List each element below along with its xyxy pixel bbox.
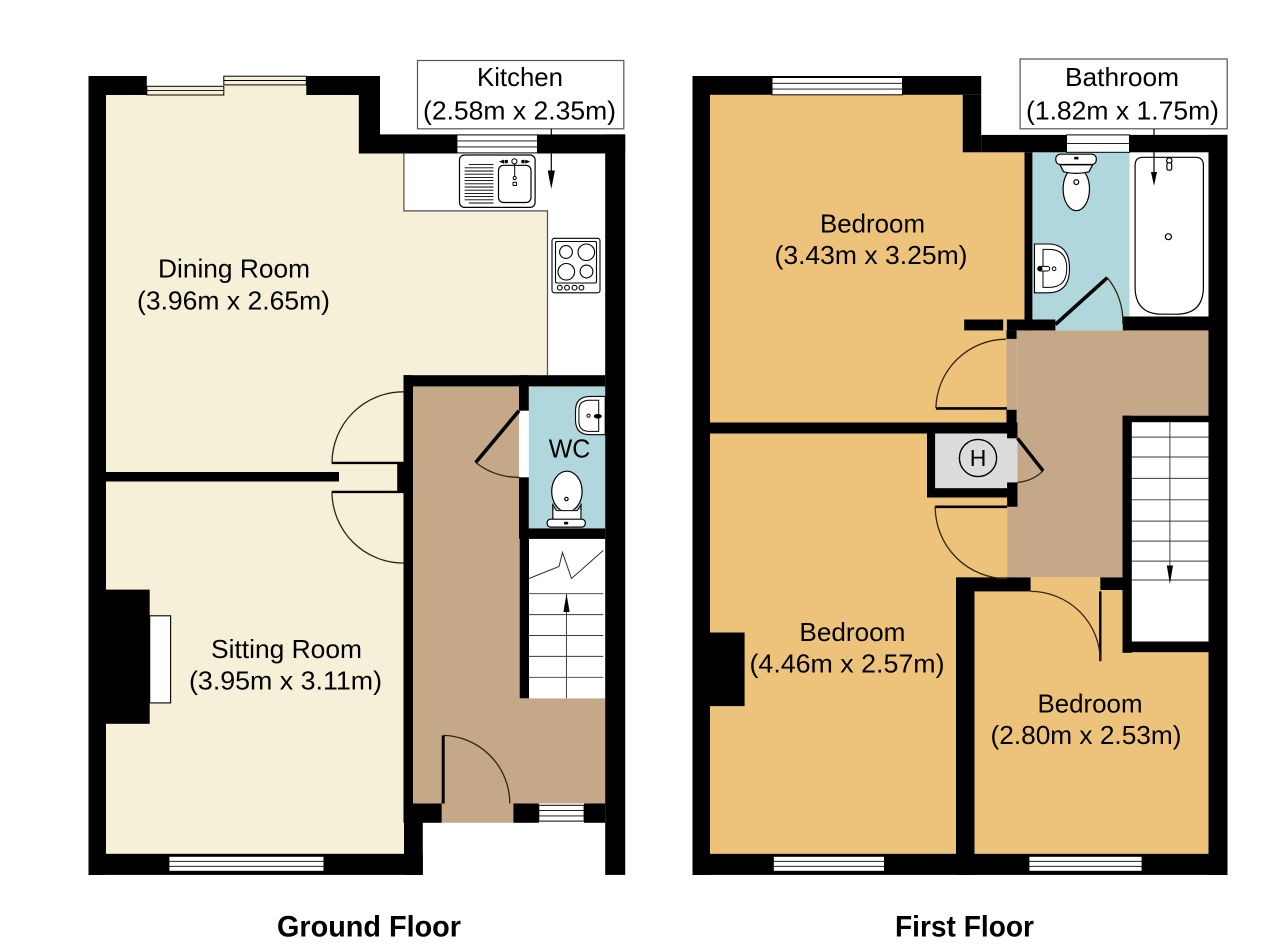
svg-text:(4.46m x 2.57m): (4.46m x 2.57m): [750, 649, 945, 679]
svg-text:Bedroom: Bedroom: [1038, 689, 1143, 719]
svg-text:WC: WC: [549, 434, 591, 464]
svg-text:Bathroom: Bathroom: [1065, 62, 1179, 92]
svg-text:Sitting Room: Sitting Room: [211, 634, 362, 664]
svg-text:Dining Room: Dining Room: [158, 254, 310, 284]
svg-text:(3.95m x 3.11m): (3.95m x 3.11m): [189, 666, 382, 696]
svg-text:(1.82m x 1.75m): (1.82m x 1.75m): [1026, 96, 1219, 126]
svg-text:(2.80m x 2.53m): (2.80m x 2.53m): [991, 720, 1182, 750]
svg-text:(3.96m x 2.65m): (3.96m x 2.65m): [137, 286, 330, 316]
svg-text:Bedroom: Bedroom: [820, 209, 925, 239]
svg-text:First Floor: First Floor: [895, 911, 1034, 944]
svg-text:Kitchen: Kitchen: [477, 62, 563, 92]
svg-text:Ground Floor: Ground Floor: [277, 911, 461, 944]
svg-text:H: H: [970, 445, 987, 471]
svg-text:(2.58m x 2.35m): (2.58m x 2.35m): [423, 96, 616, 126]
svg-text:Bedroom: Bedroom: [799, 617, 905, 647]
svg-text:(3.43m x 3.25m): (3.43m x 3.25m): [775, 240, 968, 270]
